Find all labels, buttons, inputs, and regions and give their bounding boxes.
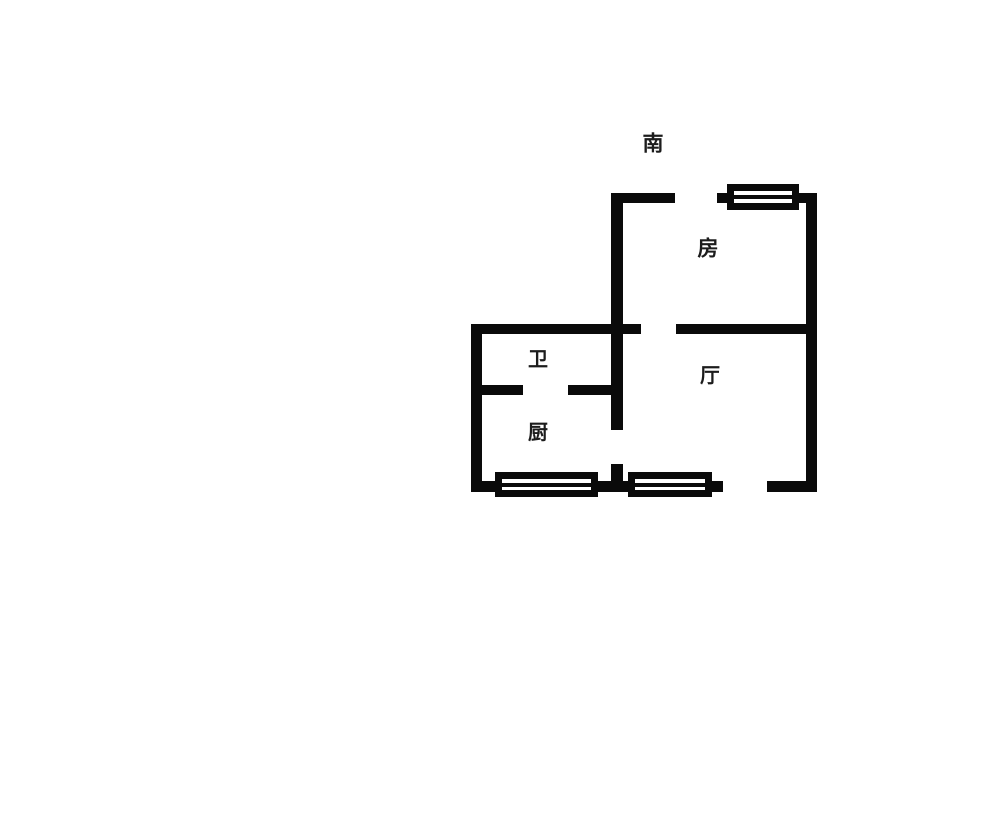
room-label-living-room: 厅 — [700, 365, 720, 385]
wall-bath-divider-left — [471, 385, 523, 395]
wall-bottom-wall-mid — [598, 481, 628, 492]
wall-left-wall — [471, 324, 482, 492]
window-mullion-line — [501, 483, 592, 487]
kitchen-window-symbol — [495, 472, 598, 497]
wall-bottom-wall-right — [767, 481, 817, 492]
room-label-bedroom: 房 — [698, 239, 719, 260]
bedroom-window-symbol — [727, 184, 799, 210]
wall-kitchen-door-stub — [611, 464, 623, 481]
window-mullion-line — [634, 483, 706, 487]
floorplan-canvas: 南 房卫厅厨 — [0, 0, 1000, 829]
living-window-symbol — [628, 472, 712, 497]
room-label-bathroom: 卫 — [528, 349, 548, 369]
wall-middle-wall-right — [676, 324, 806, 334]
wall-bath-divider-right — [568, 385, 611, 395]
wall-center-vertical-wall — [611, 193, 623, 430]
wall-bottom-wall-right-inner — [712, 481, 723, 492]
window-mullion-line — [733, 195, 793, 199]
wall-middle-wall-left — [471, 324, 641, 334]
wall-window-stub-left — [717, 193, 727, 203]
wall-right-wall — [806, 193, 817, 491]
compass-south-label: 南 — [643, 134, 664, 155]
room-label-kitchen: 厨 — [528, 422, 548, 442]
